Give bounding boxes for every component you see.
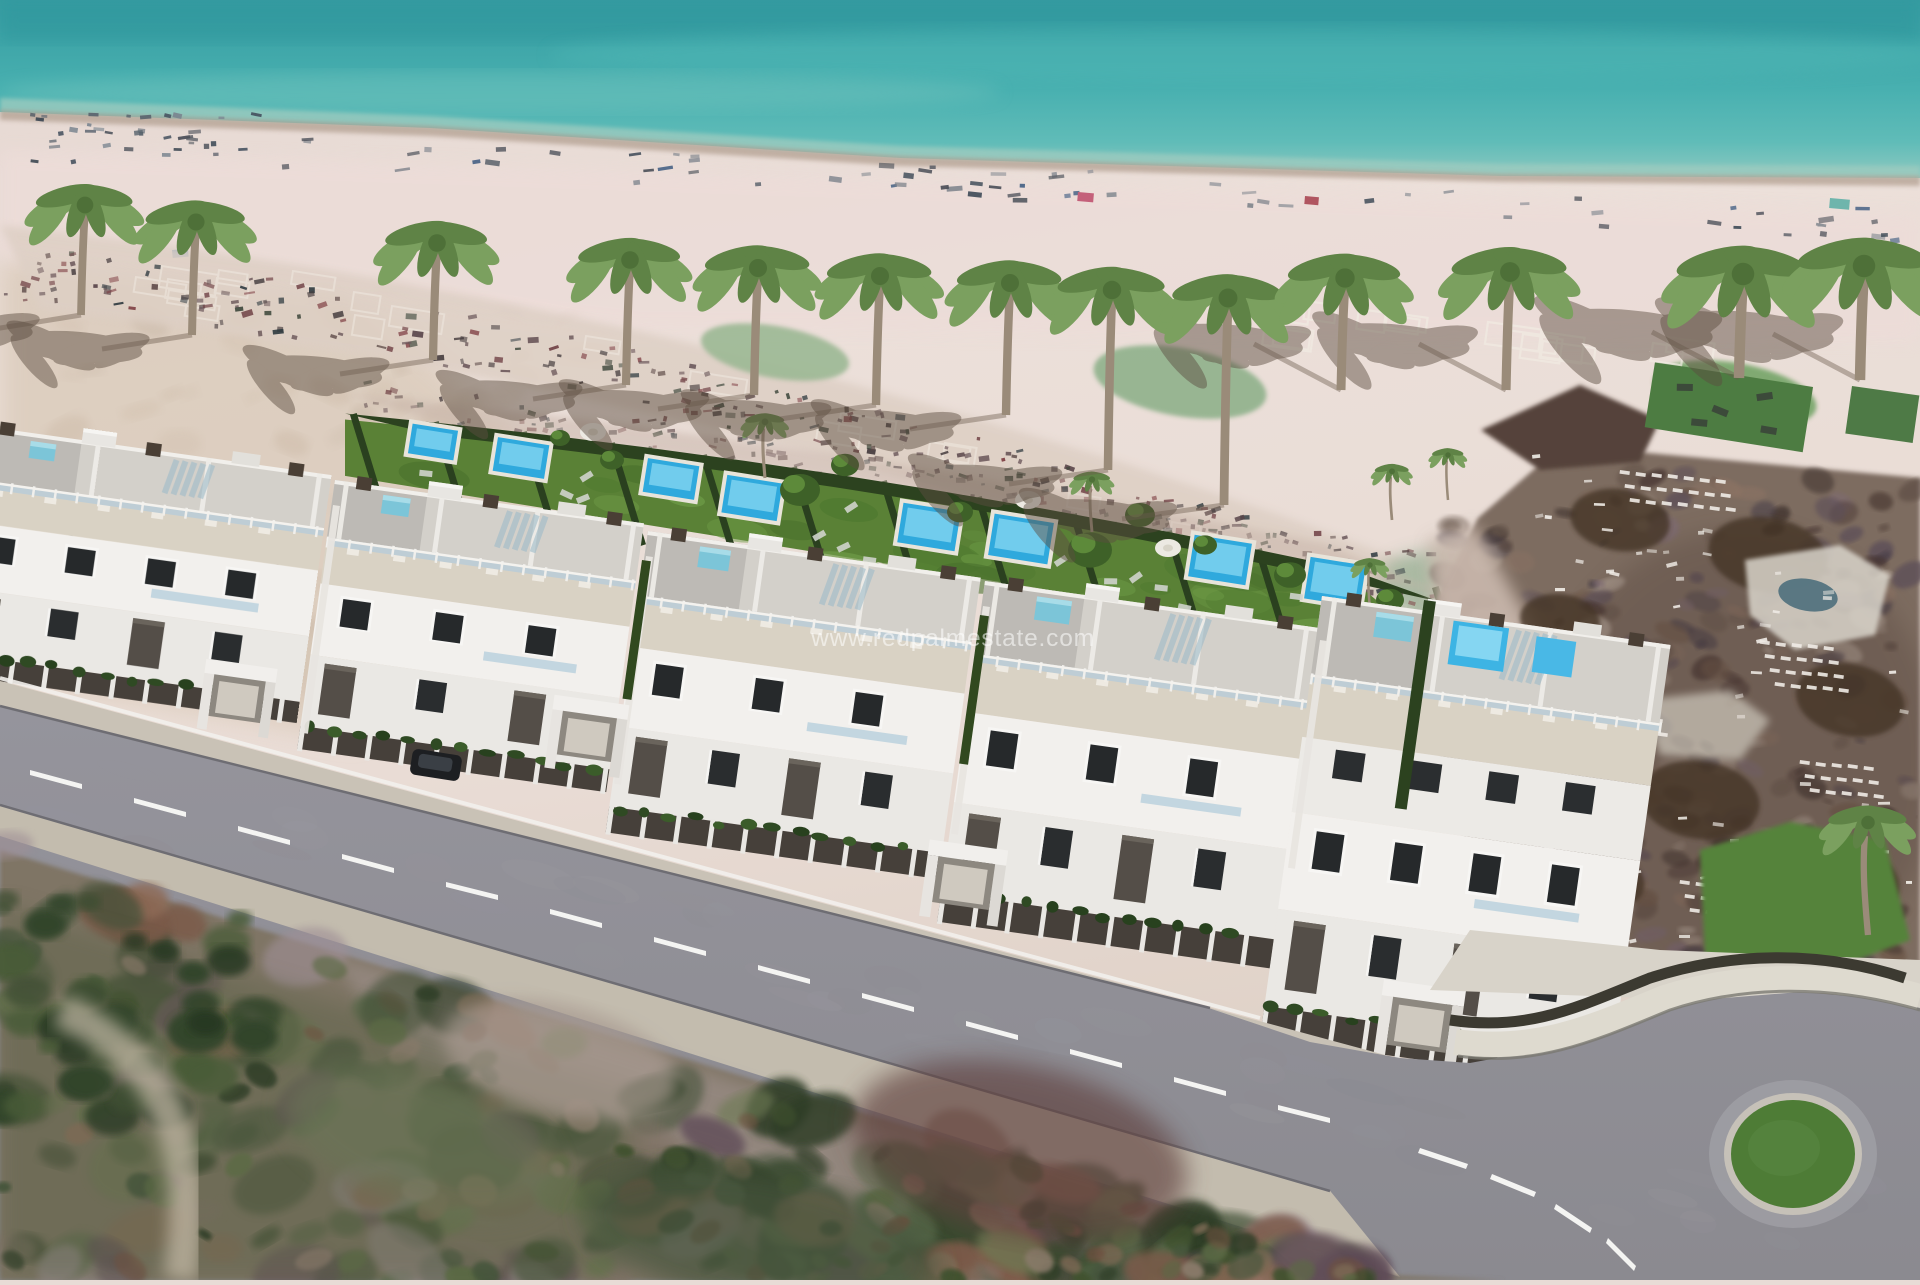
svg-text:www.redpalmestate.com: www.redpalmestate.com — [810, 625, 1095, 652]
